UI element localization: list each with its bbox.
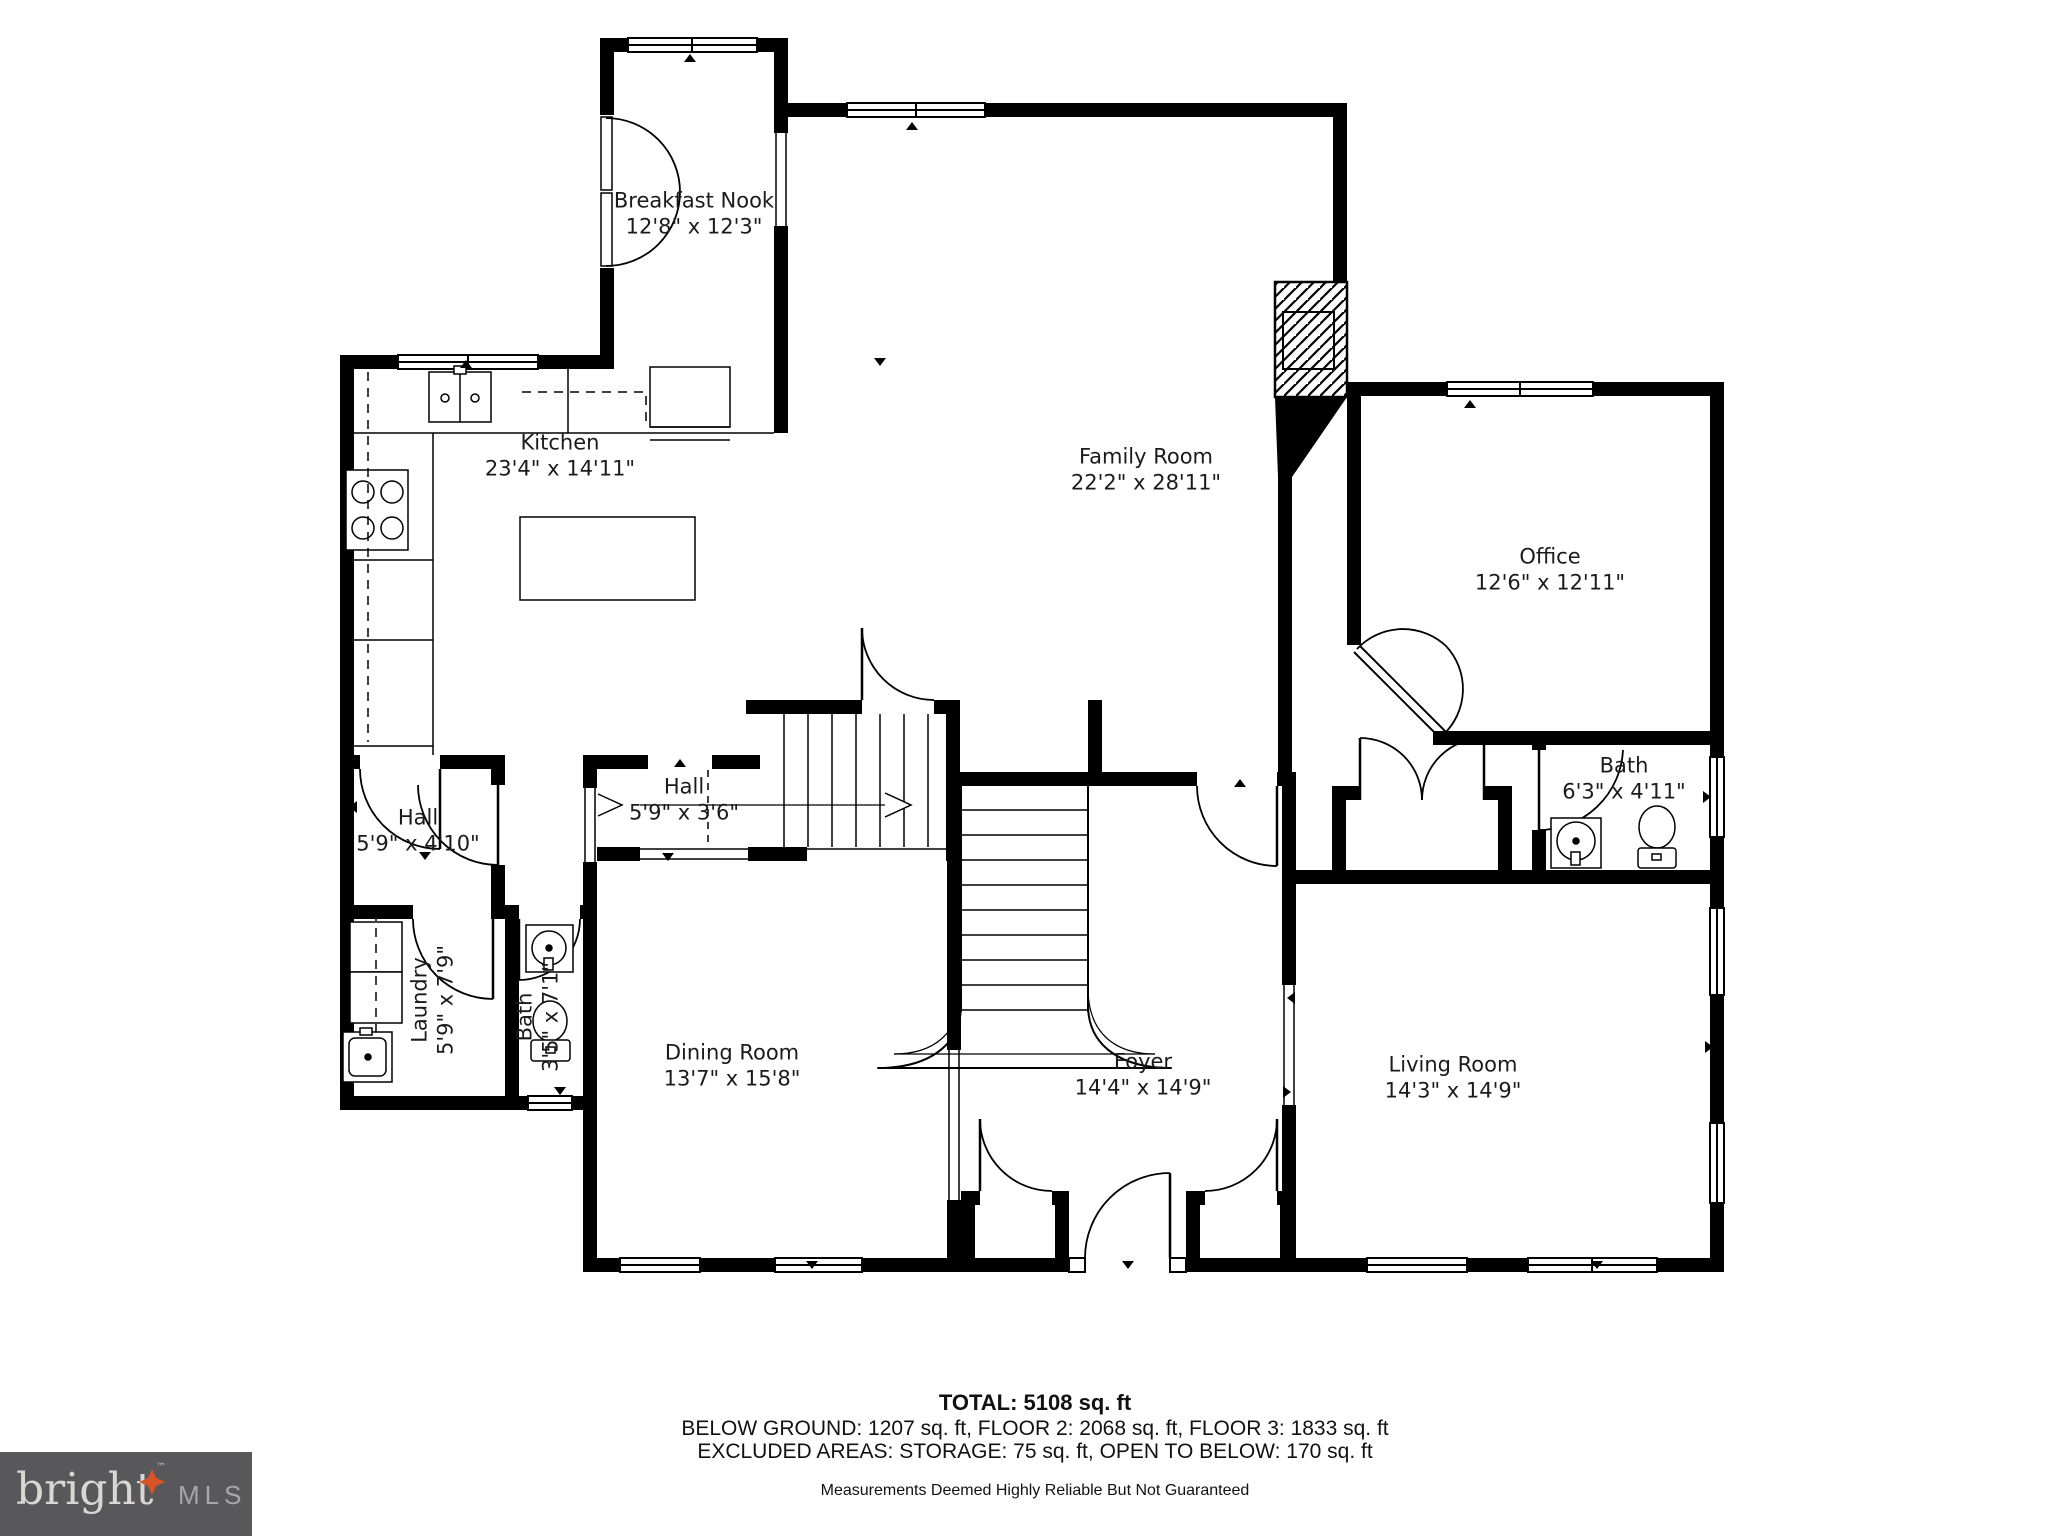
- room-dims: 6'3" x 4'11": [1562, 779, 1685, 805]
- floor-areas-text: BELOW GROUND: 1207 sq. ft, FLOOR 2: 2068…: [340, 1417, 1730, 1441]
- room-label-bath-hall: Bath 6'3" x 4'11": [1562, 753, 1685, 804]
- room-label-office: Office 12'6" x 12'11": [1475, 544, 1625, 595]
- room-dims: 5'9" x 7'9": [433, 945, 459, 1055]
- room-label-hall-2: Hall 5'9" x 4'10": [356, 805, 479, 856]
- room-dims: 13'7" x 15'8": [664, 1066, 801, 1092]
- room-dims: 22'2" x 28'11": [1071, 470, 1221, 496]
- room-dims: 5'9" x 4'10": [356, 831, 479, 857]
- room-name: Hall: [356, 805, 479, 831]
- floorplan-page: Breakfast Nook 12'8" x 12'3" Kitchen 23'…: [0, 0, 2048, 1536]
- disclaimer-text: Measurements Deemed Highly Reliable But …: [340, 1482, 1730, 1500]
- kitchen-fixtures: [346, 366, 774, 755]
- room-dims: 12'8" x 12'3": [614, 214, 774, 240]
- room-label-laundry: Laundry 5'9" x 7'9": [407, 945, 458, 1055]
- brightmls-logo: bright ™ MLS: [0, 1452, 252, 1536]
- room-label-hall-1: Hall 5'9" x 3'6": [629, 774, 739, 825]
- fireplace-hatch: [1275, 282, 1347, 397]
- excluded-areas-text: EXCLUDED AREAS: STORAGE: 75 sq. ft, OPEN…: [340, 1440, 1730, 1464]
- room-name: Kitchen: [485, 430, 635, 456]
- room-name: Laundry: [407, 945, 433, 1055]
- room-label-living-room: Living Room 14'3" x 14'9": [1385, 1052, 1522, 1103]
- room-dims: 5'9" x 3'6": [629, 800, 739, 826]
- room-name: Foyer: [1075, 1049, 1212, 1075]
- kitchen-sink-icon: [429, 366, 491, 422]
- room-name: Hall: [629, 774, 739, 800]
- laundry-fixtures: [343, 912, 402, 1086]
- room-dims: 14'4" x 14'9": [1075, 1075, 1212, 1101]
- room-name: Bath: [512, 962, 538, 1072]
- room-name: Family Room: [1071, 444, 1221, 470]
- room-label-family-room: Family Room 22'2" x 28'11": [1071, 444, 1221, 495]
- room-label-bath-small: Bath 3'5" x 7'1": [512, 962, 563, 1072]
- cooktop-icon: [346, 470, 408, 550]
- total-area-text: TOTAL: 5108 sq. ft: [340, 1390, 1730, 1416]
- logo-brand-text: bright: [16, 1464, 153, 1515]
- room-name: Breakfast Nook: [614, 188, 774, 214]
- room-dims: 3'5" x 7'1": [538, 962, 564, 1072]
- room-name: Dining Room: [664, 1040, 801, 1066]
- room-name: Living Room: [1385, 1052, 1522, 1078]
- room-dims: 12'6" x 12'11": [1475, 570, 1625, 596]
- logo-suffix-text: MLS: [178, 1480, 246, 1511]
- stairs: [598, 714, 1171, 1068]
- laundry-sink-icon: [343, 1028, 392, 1082]
- room-dims: 23'4" x 14'11": [485, 456, 635, 482]
- floor-plan-drawing: [0, 0, 2048, 1536]
- bath1-toilet-icon: [1638, 806, 1676, 868]
- room-label-dining-room: Dining Room 13'7" x 15'8": [664, 1040, 801, 1091]
- room-label-breakfast-nook: Breakfast Nook 12'8" x 12'3": [614, 188, 774, 239]
- bath1-sink-icon: [1551, 818, 1601, 868]
- room-label-foyer: Foyer 14'4" x 14'9": [1075, 1049, 1212, 1100]
- room-label-kitchen: Kitchen 23'4" x 14'11": [485, 430, 635, 481]
- room-dims: 14'3" x 14'9": [1385, 1078, 1522, 1104]
- kitchen-island: [520, 517, 695, 600]
- room-name: Office: [1475, 544, 1625, 570]
- logo-tm: ™: [156, 1462, 166, 1473]
- room-name: Bath: [1562, 753, 1685, 779]
